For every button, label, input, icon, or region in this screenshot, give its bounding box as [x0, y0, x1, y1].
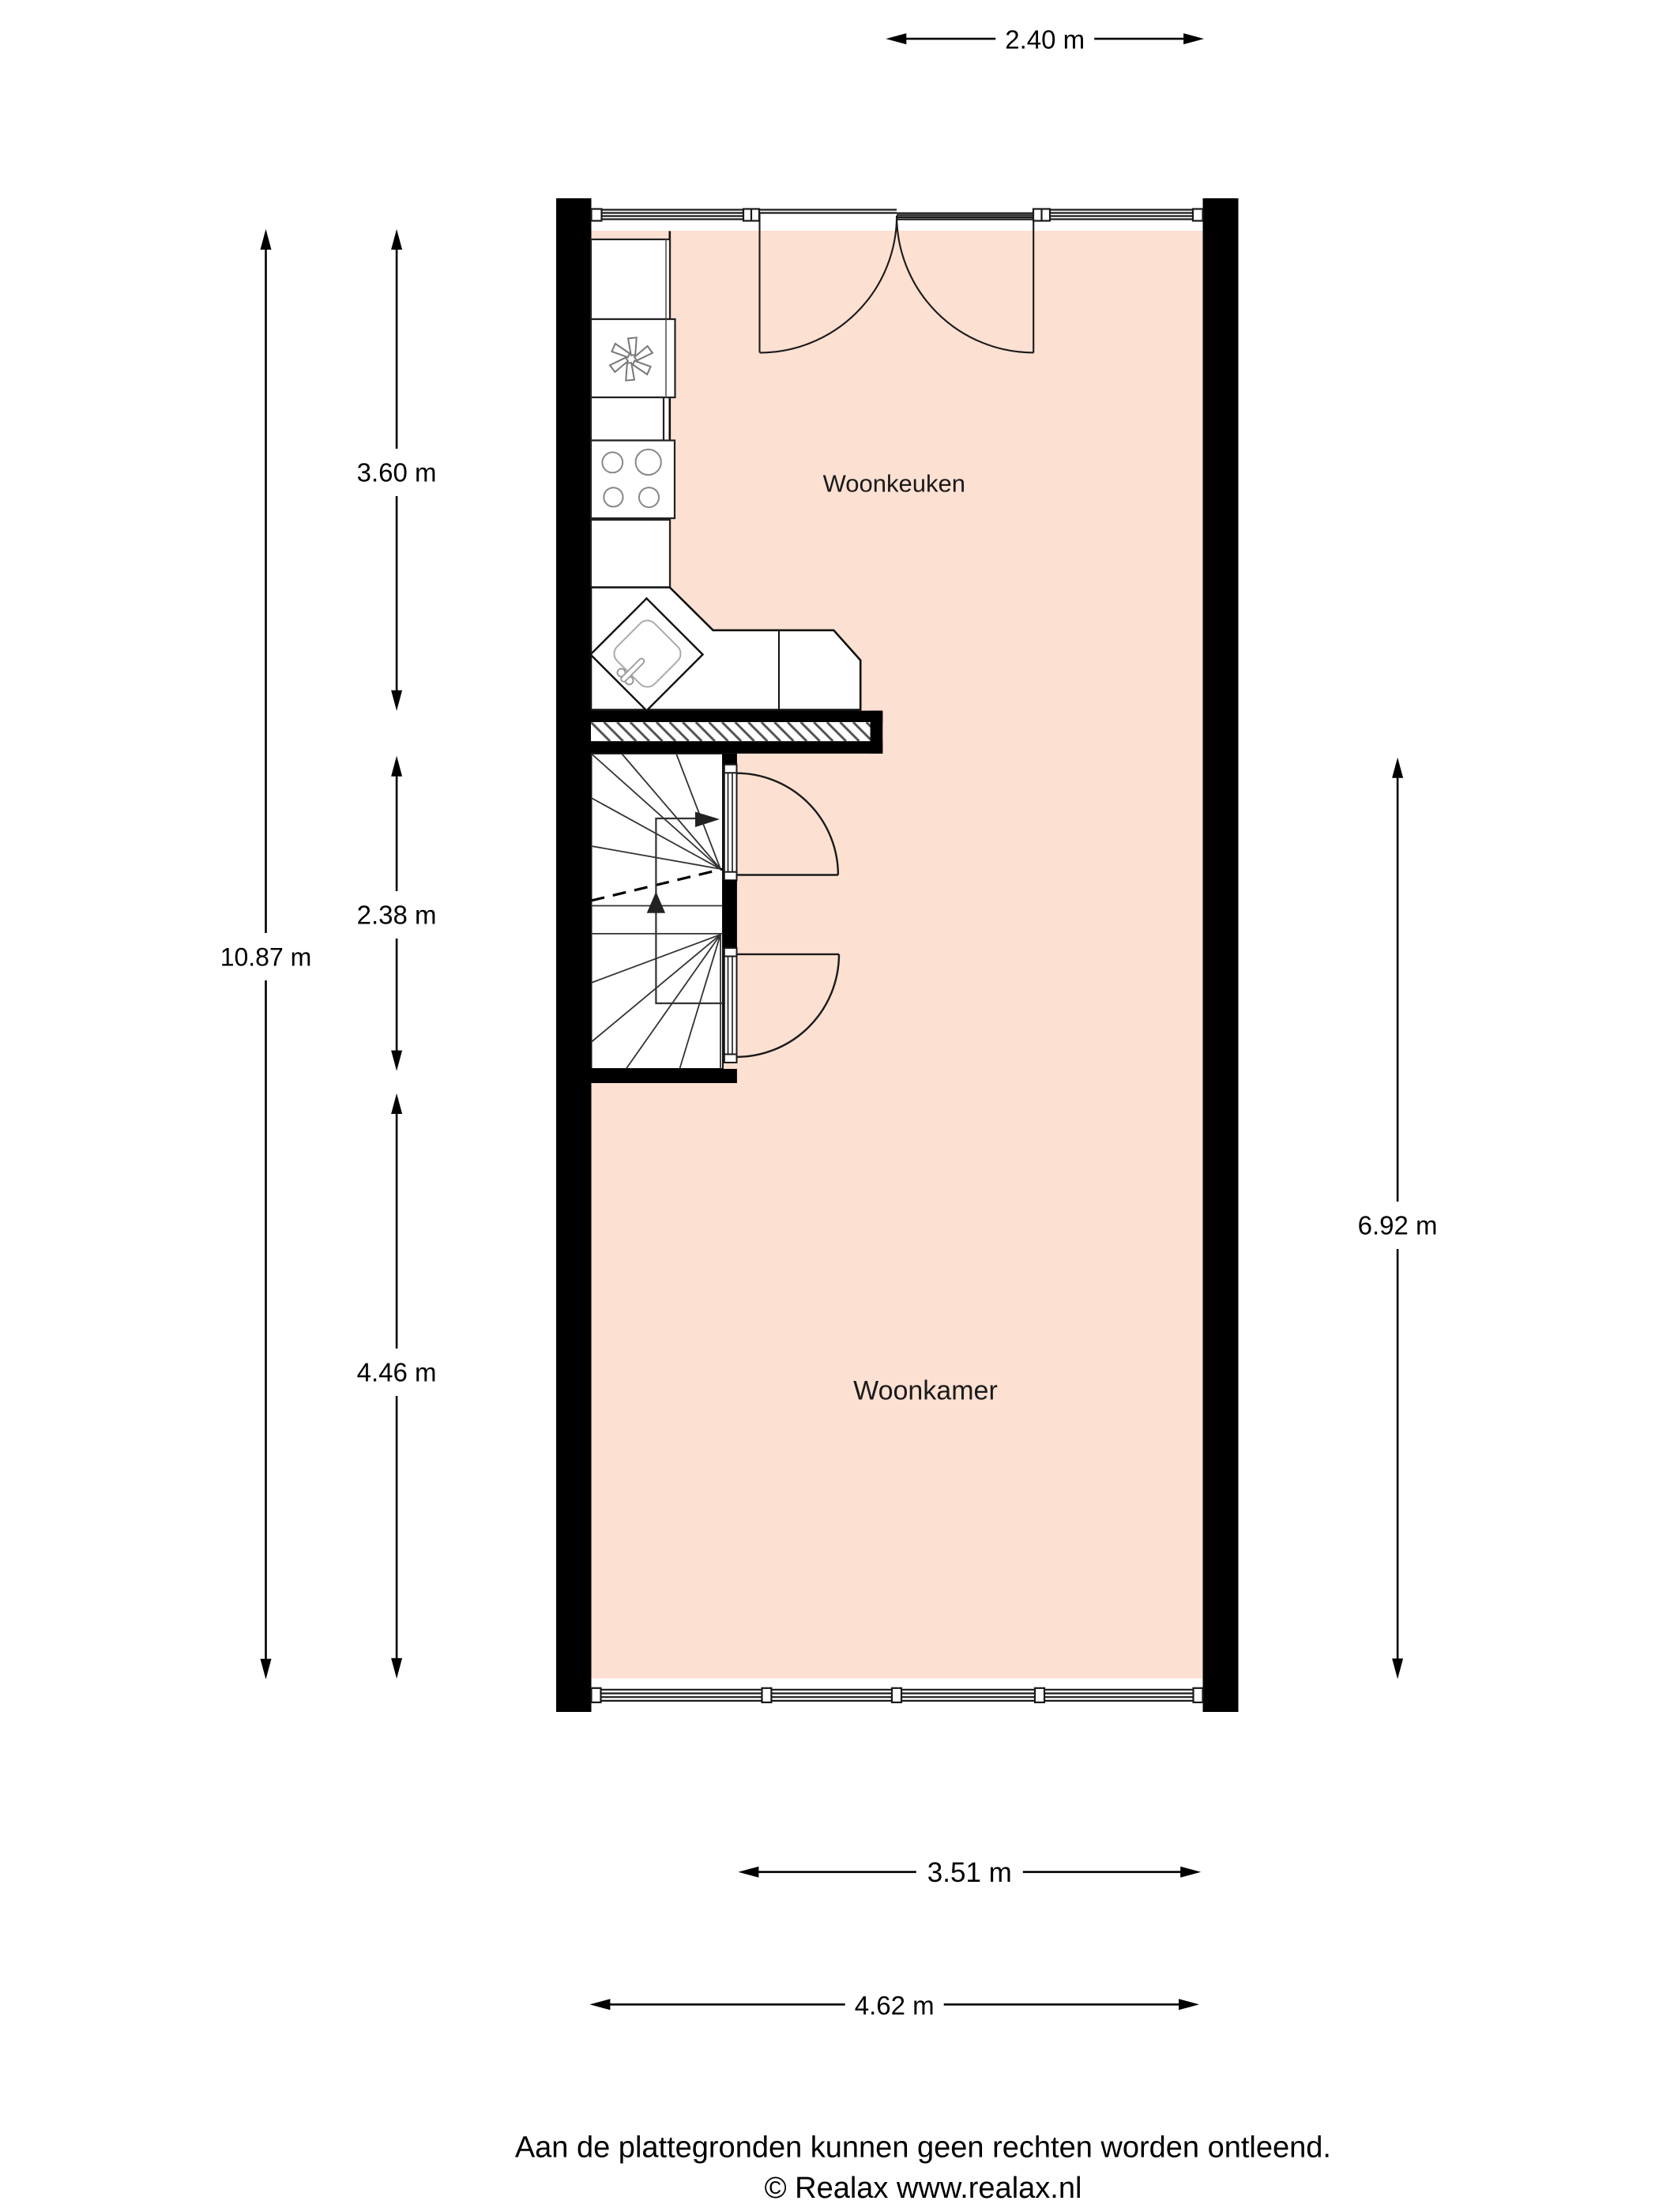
svg-text:© Realax www.realax.nl: © Realax www.realax.nl [765, 2172, 1082, 2205]
svg-text:Woonkeuken: Woonkeuken [823, 469, 965, 497]
svg-text:3.51 m: 3.51 m [927, 1857, 1012, 1888]
svg-text:2.40 m: 2.40 m [1005, 25, 1085, 55]
svg-text:3.60 m: 3.60 m [357, 458, 437, 487]
svg-text:Woonkamer: Woonkamer [853, 1376, 998, 1406]
svg-text:6.92 m: 6.92 m [1358, 1211, 1438, 1240]
svg-text:4.62 m: 4.62 m [855, 1991, 935, 2020]
svg-text:10.87 m: 10.87 m [220, 943, 312, 972]
svg-text:2.38 m: 2.38 m [357, 901, 437, 930]
svg-text:Aan de plattegronden kunnen ge: Aan de plattegronden kunnen geen rechten… [515, 2131, 1331, 2165]
svg-text:4.46 m: 4.46 m [357, 1358, 437, 1387]
